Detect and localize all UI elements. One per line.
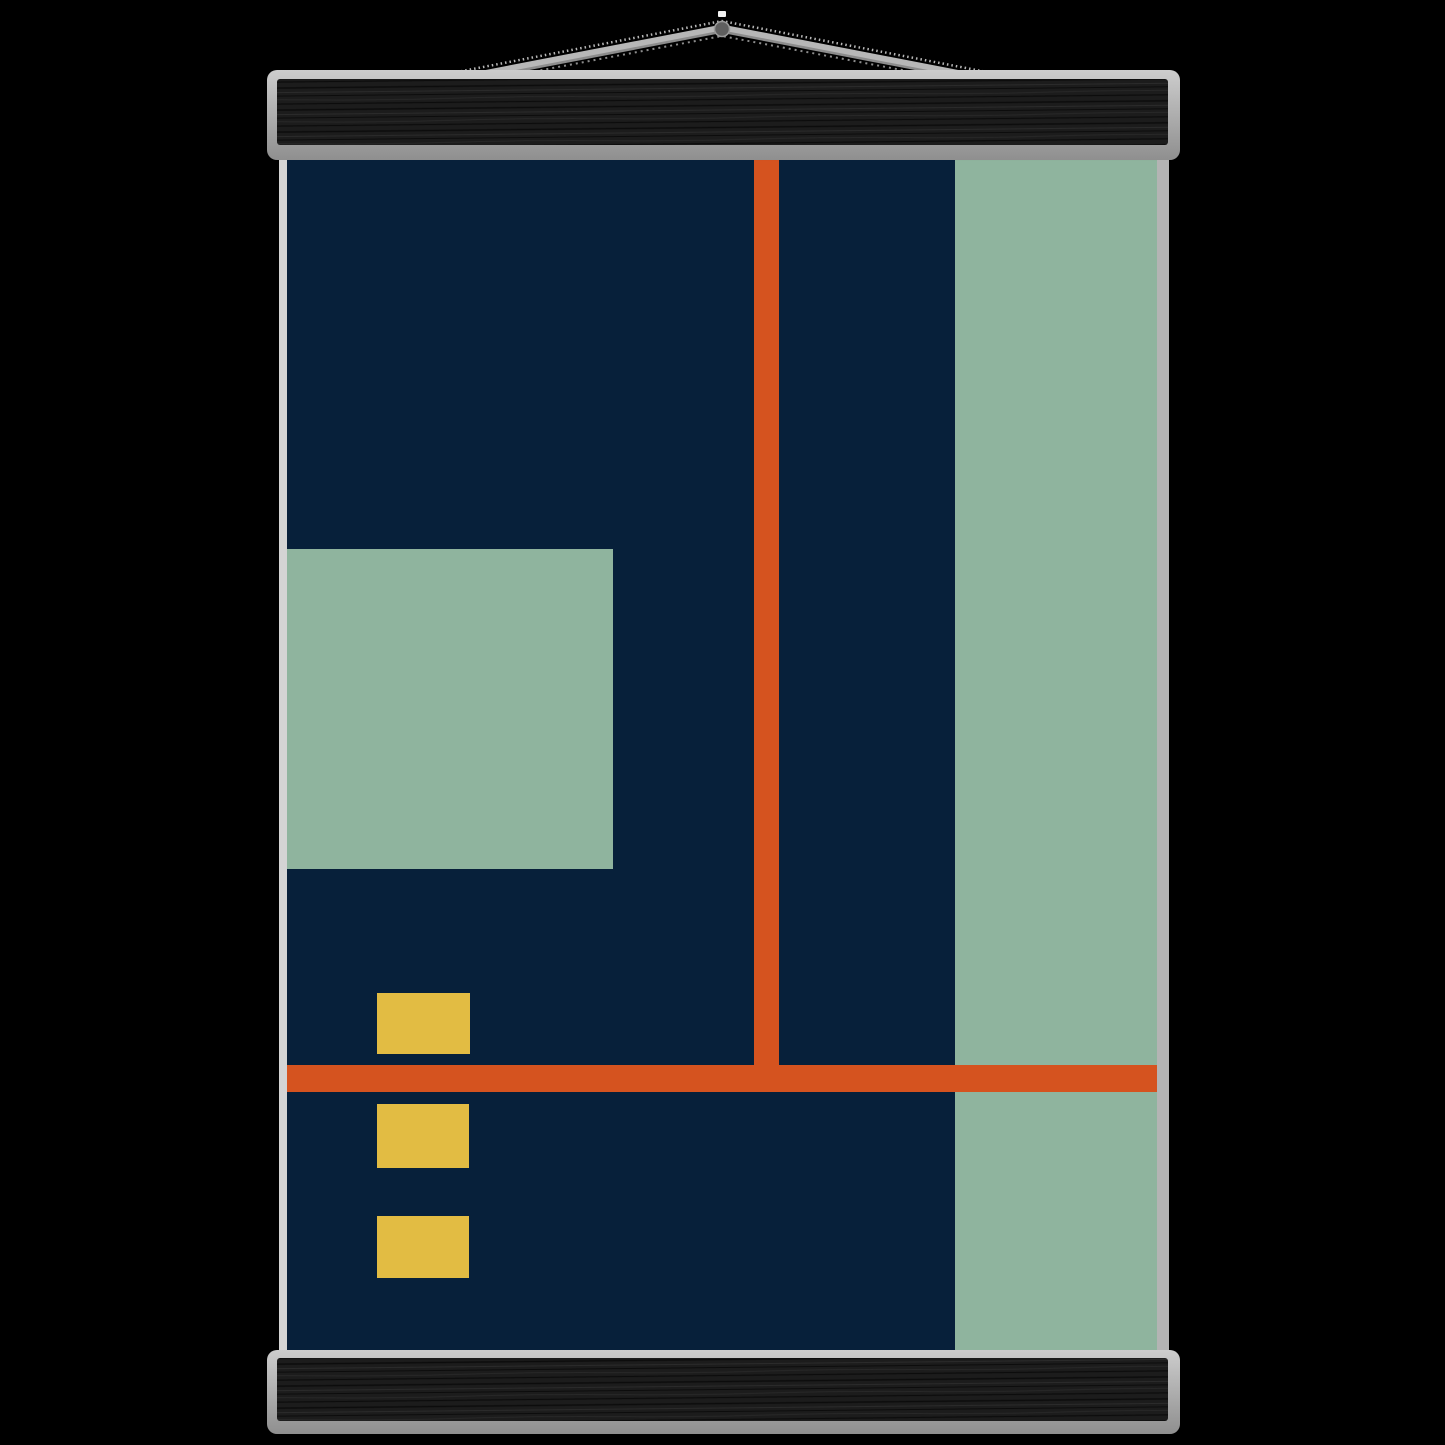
top-wood-bar	[277, 79, 1168, 145]
hook-pin	[718, 11, 726, 17]
cord-ring	[715, 22, 730, 37]
poster-mockup-scene	[0, 0, 1445, 1445]
horizontal-orange-line	[287, 1065, 1157, 1092]
bottom-hanger	[267, 1350, 1180, 1434]
yellow-block-middle	[377, 1104, 469, 1168]
poster-right-edge	[1157, 146, 1169, 1358]
poster-left-edge	[279, 146, 287, 1358]
right-green-band	[955, 146, 1157, 1358]
artwork-shapes	[287, 146, 1157, 1358]
top-hanger	[267, 70, 1180, 160]
yellow-block-bottom	[377, 1216, 469, 1278]
poster-hanger-image	[0, 0, 1445, 1445]
bottom-wood-bar	[277, 1358, 1168, 1421]
left-green-square	[287, 549, 613, 869]
vertical-orange-line	[754, 146, 779, 1065]
yellow-block-top	[377, 993, 470, 1054]
